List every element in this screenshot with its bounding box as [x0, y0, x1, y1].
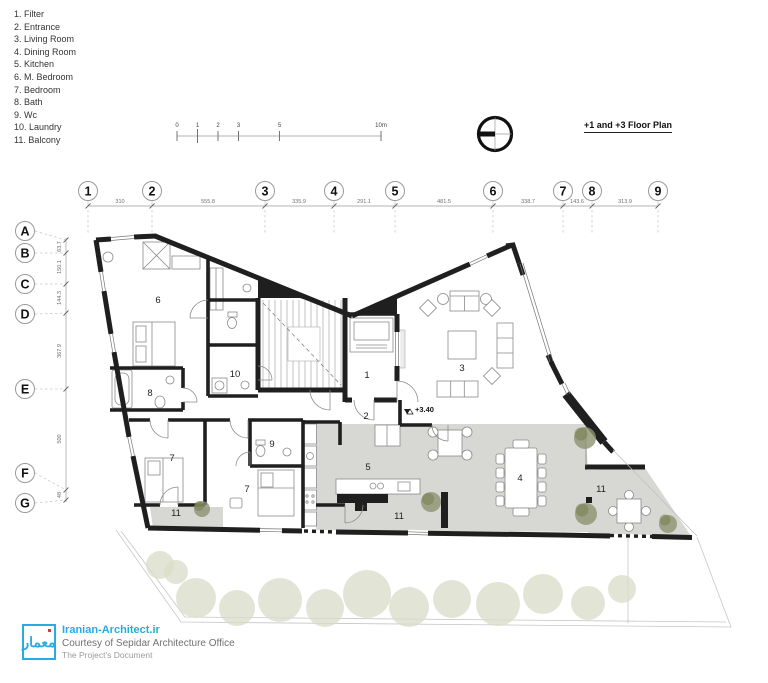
toilet-icon [228, 318, 237, 329]
floor-plan-drawing: 310 555.8 335.9 291.1 481.5 338.7 143.6 … [0, 0, 768, 683]
watermark-logo: معمار [22, 624, 56, 660]
armchair-icon [484, 368, 501, 385]
dim-label: 367.9 [57, 344, 63, 358]
room-label-entrance: 2 [363, 411, 368, 422]
chair-icon [625, 523, 634, 532]
glass-wall [520, 263, 553, 362]
sink-icon [166, 376, 174, 384]
dim-label: 481.5 [437, 199, 451, 205]
wc-door [236, 452, 250, 466]
bath-door [183, 388, 197, 402]
dim-label: 144.3 [57, 291, 63, 305]
logo-calligraphy: معمار [22, 635, 55, 649]
scale-label: 5 [278, 123, 282, 129]
watermark: معمار Iranian-Architect.ir Courtesy of S… [22, 624, 235, 661]
logo-accent [48, 629, 51, 632]
dim-label: 335.9 [292, 199, 306, 205]
room-label-bedroom-a: 7 [169, 453, 174, 464]
room-label-bath: 8 [147, 388, 152, 399]
pillow-icon [136, 346, 146, 362]
chair-icon [625, 491, 634, 500]
grid-bubble-label: 6 [490, 185, 497, 199]
dim-label: 150.1 [57, 260, 63, 274]
tree-icon [194, 501, 210, 517]
dim-label: 555.8 [201, 199, 215, 205]
closet-icon [375, 425, 400, 446]
scale-label: 3 [237, 123, 241, 129]
sofa-icon [437, 381, 478, 397]
grid-bubble-label: 3 [262, 185, 269, 199]
room-label-dining: 4 [517, 473, 522, 484]
grid-bubble-label: G [20, 497, 30, 511]
coffee-table-icon [448, 331, 476, 359]
chair-icon [642, 507, 651, 516]
scale-label: 0 [175, 123, 179, 129]
tree-icon [574, 427, 596, 449]
level-marker: +3.40 [404, 405, 434, 414]
balcony-railing [304, 531, 336, 532]
kitchen-island-icon [337, 494, 388, 503]
room-label-balcony-right: 11 [596, 484, 606, 495]
toilet-icon [155, 396, 165, 408]
north-arrow-icon [479, 118, 512, 151]
bedroom-door [230, 420, 248, 438]
room-label-kitchen: 5 [365, 462, 370, 473]
level-marker-label: +3.40 [415, 405, 434, 414]
pillow-icon [136, 326, 146, 342]
column-bubbles: 1 2 3 4 5 6 7 8 9 [79, 182, 668, 201]
dim-label: 310 [115, 199, 124, 205]
pillow-icon [148, 461, 160, 475]
floor-plan-sheet: 1. Filter 2. Entrance 3. Living Room 4. … [0, 0, 768, 683]
grid-bubble-label: 7 [560, 185, 567, 199]
chair-icon [428, 450, 438, 460]
site-context [116, 530, 731, 627]
floor-finishes [150, 424, 691, 536]
faint-tree-row [146, 551, 636, 627]
room-label-living: 3 [459, 363, 464, 374]
dim-label: 338.7 [521, 199, 535, 205]
m-bedroom-door [190, 300, 208, 318]
room-label-m-bedroom: 6 [155, 295, 160, 306]
breakfast-table-icon [438, 430, 462, 456]
dresser-icon [172, 256, 200, 269]
sink-icon [241, 381, 249, 389]
balcony-left-floor [150, 507, 223, 528]
armchair-icon [420, 300, 437, 317]
chair-icon [609, 507, 618, 516]
room-label-bedroom-b: 7 [244, 484, 249, 495]
scale-label: 2 [216, 123, 220, 129]
grid-bubble-label: 9 [655, 185, 662, 199]
tree-icon [421, 492, 441, 512]
grid-bubble-label: 1 [85, 185, 92, 199]
scale-label: 1 [196, 123, 200, 129]
grid-bubble-label: B [20, 247, 29, 261]
kitchen-counter-icon [336, 479, 420, 494]
appliance-column [304, 424, 317, 526]
scale-label: 10m [375, 123, 387, 129]
room-label-balcony-center: 11 [394, 511, 404, 522]
row-bubbles: A B C D E F G [16, 222, 35, 513]
sink-icon [283, 448, 291, 456]
grid-bubble-label: A [20, 225, 29, 239]
dim-label: 63.7 [57, 241, 63, 252]
room-label-balcony-left: 11 [171, 508, 181, 519]
bedroom-door [150, 420, 168, 438]
stair-landing [288, 327, 320, 361]
sink-icon [243, 284, 251, 292]
chair-icon [462, 427, 472, 437]
filter-unit-icon [350, 318, 393, 352]
toilet-icon [256, 446, 265, 457]
stairs [263, 300, 341, 388]
stool-icon [103, 252, 113, 262]
side-table-icon [438, 294, 449, 305]
grid-bubble-label: 2 [149, 185, 156, 199]
dim-label: 500 [57, 434, 63, 443]
chair-icon [462, 450, 472, 460]
room-label-wc: 9 [269, 439, 274, 450]
dim-label: 143.6 [570, 199, 584, 205]
filter-room-door [397, 381, 418, 402]
stair-door [310, 390, 330, 410]
grid-bubble-label: F [21, 467, 29, 481]
courtesy-text: Courtesy of Sepidar Architecture Office [62, 637, 235, 650]
grid-bubble-label: D [20, 308, 29, 322]
sofa-icon [497, 323, 513, 368]
site-link[interactable]: Iranian-Architect.ir [62, 624, 235, 637]
document-text: The Project's Document [62, 650, 235, 661]
room-label-filter: 1 [364, 370, 369, 381]
grid-bubble-label: E [21, 383, 29, 397]
grid-bubble-label: 8 [589, 185, 596, 199]
scale-bar: 0 1 2 3 5 10m [175, 123, 387, 143]
dim-label: 291.1 [357, 199, 371, 205]
room-label-laundry: 10 [230, 369, 241, 380]
grid-bubble-label: C [20, 278, 29, 292]
grid-bubble-label: 5 [392, 185, 399, 199]
column-grid-lines [88, 201, 658, 235]
balcony-railing [610, 536, 652, 537]
dim-label: 48 [57, 492, 63, 498]
dim-label: 313.9 [618, 199, 632, 205]
washer-icon [212, 378, 227, 393]
tree-icon [575, 503, 597, 525]
balcony-table-icon [617, 499, 641, 523]
grid-bubble-label: 4 [331, 185, 338, 199]
pillow-icon [261, 473, 273, 487]
chair-icon [428, 427, 438, 437]
shower-icon [210, 268, 223, 310]
stool-icon [230, 498, 242, 508]
